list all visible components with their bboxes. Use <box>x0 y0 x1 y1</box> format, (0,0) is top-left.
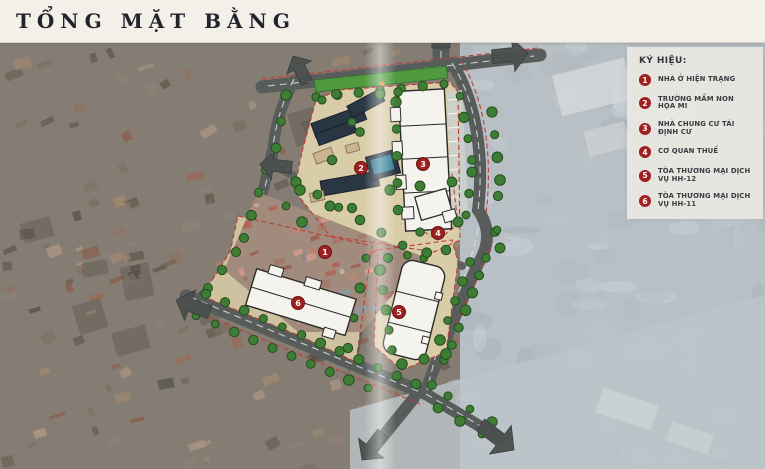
tree-icon <box>354 355 364 365</box>
tree-icon <box>211 320 219 328</box>
legend-item-label: NHÀ Ở HIỆN TRẠNG <box>658 76 735 84</box>
tree-icon <box>268 344 277 353</box>
tree-icon <box>254 188 263 197</box>
tree-icon <box>355 283 365 293</box>
legend-item: 3NHÀ CHUNG CƯ TÁI ĐỊNH CƯ <box>639 121 753 137</box>
tree-icon <box>231 247 240 256</box>
tree-icon <box>495 175 506 186</box>
map-marker-6: 6 <box>292 297 305 310</box>
tree-icon <box>327 155 337 165</box>
tree-icon <box>453 217 463 227</box>
legend-item-label: NHÀ CHUNG CƯ TÁI ĐỊNH CƯ <box>658 121 753 137</box>
tree-icon <box>435 335 446 346</box>
tree-icon <box>428 381 437 390</box>
tree-icon <box>239 233 248 242</box>
map-marker-2: 2 <box>355 162 368 175</box>
tree-icon <box>466 405 474 413</box>
tree-icon <box>433 403 443 413</box>
tree-icon <box>447 177 457 187</box>
tree-icon <box>316 338 326 348</box>
tree-icon <box>271 143 281 153</box>
tree-icon <box>297 331 306 340</box>
tree-icon <box>415 181 425 191</box>
svg-text:6: 6 <box>295 299 301 308</box>
tree-icon <box>441 349 452 360</box>
tree-icon <box>217 265 226 274</box>
page-title: TỔNG MẶT BẰNG <box>16 9 296 33</box>
legend-item-number: 1 <box>639 74 651 86</box>
tree-icon <box>444 317 452 325</box>
tree-icon <box>440 80 448 88</box>
tree-icon <box>335 203 343 211</box>
svg-text:3: 3 <box>420 160 426 169</box>
tree-icon <box>455 416 465 426</box>
tree-icon <box>444 392 452 400</box>
legend-title: KÝ HIỆU: <box>639 56 753 66</box>
legend-item: 2TRƯỜNG MẦM NON HỌA MI <box>639 96 753 112</box>
tree-icon <box>325 368 334 377</box>
svg-text:1: 1 <box>322 248 328 257</box>
tree-icon <box>325 201 335 211</box>
legend-item: 4CƠ QUAN THUẾ <box>639 146 753 158</box>
tree-icon <box>416 228 424 236</box>
legend-item: 5TÒA THƯƠNG MẠI DỊCH VỤ HH-12 <box>639 168 753 184</box>
tree-icon <box>344 375 355 386</box>
tree-icon <box>451 297 460 306</box>
tree-icon <box>493 191 502 200</box>
tree-icon <box>492 152 503 163</box>
tree-icon <box>411 379 421 389</box>
tree-icon <box>454 323 463 332</box>
tree-icon <box>467 288 477 298</box>
tree-icon <box>482 254 490 262</box>
tree-icon <box>201 289 211 299</box>
tree-icon <box>354 88 363 97</box>
paper-fold <box>364 0 396 469</box>
tree-icon <box>348 118 356 126</box>
legend-item-number: 3 <box>639 123 651 135</box>
tree-icon <box>343 343 352 352</box>
tree-icon <box>239 306 249 316</box>
tree-icon <box>419 354 429 364</box>
legend-item: 1NHÀ Ở HIỆN TRẠNG <box>639 74 753 86</box>
title-bar: TỔNG MẶT BẰNG <box>0 0 765 43</box>
tree-icon <box>475 271 484 280</box>
tree-icon <box>397 359 408 370</box>
svg-text:5: 5 <box>396 308 402 317</box>
tree-icon <box>404 252 412 260</box>
legend-panel: KÝ HIỆU: 1NHÀ Ở HIỆN TRẠNG2TRƯỜNG MẦM NO… <box>627 47 763 219</box>
legend-item-label: TÒA THƯƠNG MẠI DỊCH VỤ HH-12 <box>658 168 753 184</box>
tree-icon <box>448 341 457 350</box>
legend-item-number: 5 <box>639 170 651 182</box>
tree-icon <box>491 131 499 139</box>
tree-icon <box>465 189 474 198</box>
tree-icon <box>418 82 427 91</box>
tree-icon <box>297 217 308 228</box>
tree-icon <box>467 167 477 177</box>
tree-icon <box>313 190 322 199</box>
tree-icon <box>422 248 432 258</box>
tree-icon <box>282 202 290 210</box>
tree-icon <box>350 314 358 322</box>
tree-icon <box>259 314 267 322</box>
tree-icon <box>466 258 475 267</box>
tree-icon <box>278 323 286 331</box>
tree-icon <box>229 327 239 337</box>
map-marker-4: 4 <box>432 227 445 240</box>
legend-item-label: TRƯỜNG MẦM NON HỌA MI <box>658 96 753 112</box>
tree-icon <box>355 215 365 225</box>
map-marker-1: 1 <box>319 246 332 259</box>
tree-icon <box>441 245 450 254</box>
tree-icon <box>356 128 365 137</box>
tree-icon <box>287 352 296 361</box>
legend-item-number: 2 <box>639 97 651 109</box>
tree-icon <box>460 305 471 316</box>
tree-icon <box>221 298 230 307</box>
legend-item-number: 6 <box>639 195 651 207</box>
tree-icon <box>281 90 292 101</box>
tree-icon <box>331 89 340 98</box>
tree-icon <box>306 360 315 369</box>
tree-icon <box>347 203 356 212</box>
map-marker-5: 5 <box>393 306 406 319</box>
legend-item-label: CƠ QUAN THUẾ <box>658 148 718 156</box>
tree-icon <box>493 226 501 234</box>
legend-item-number: 4 <box>639 146 651 158</box>
legend-item-label: TÒA THƯƠNG MẠI DỊCH VỤ HH-11 <box>658 193 753 209</box>
tree-icon <box>249 335 258 344</box>
tree-icon <box>456 92 464 100</box>
site-plan-page: 123456 TỔNG MẶT BẰNG KÝ HIỆU: 1NHÀ Ở HIỆ… <box>0 0 765 469</box>
legend-items: 1NHÀ Ở HIỆN TRẠNG2TRƯỜNG MẦM NON HỌA MI3… <box>639 74 753 209</box>
tree-icon <box>495 243 505 253</box>
tree-icon <box>398 241 406 249</box>
svg-text:4: 4 <box>435 229 441 238</box>
tree-icon <box>462 211 470 219</box>
svg-text:2: 2 <box>358 164 364 173</box>
legend-item: 6TÒA THƯƠNG MẠI DỊCH VỤ HH-11 <box>639 193 753 209</box>
tree-icon <box>318 96 326 104</box>
tree-icon <box>464 135 472 143</box>
tree-icon <box>295 185 306 196</box>
tree-icon <box>487 107 497 117</box>
tree-icon <box>458 277 467 286</box>
tree-icon <box>459 112 469 122</box>
tree-icon <box>246 210 256 220</box>
tree-icon <box>277 117 286 126</box>
tree-icon <box>468 156 477 165</box>
map-marker-3: 3 <box>417 158 430 171</box>
